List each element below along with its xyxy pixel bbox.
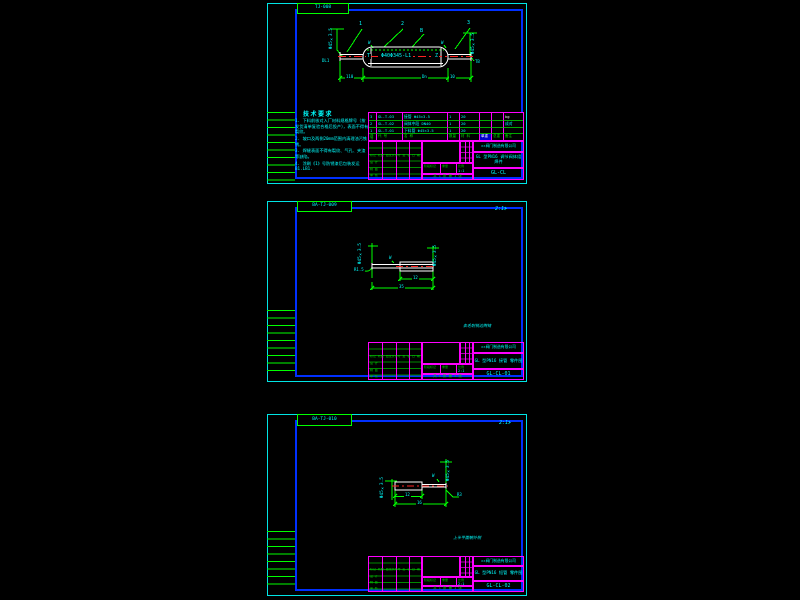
sheet3-revision-ladder — [267, 531, 295, 591]
radius-label: R3 — [457, 493, 462, 497]
weight-label: 重量 — [442, 579, 448, 582]
drawing-title: GL 型PN16 接管 零件图 — [475, 359, 523, 364]
drawing-number: GL-CL-02 — [486, 584, 510, 590]
dim-left: 110 — [345, 75, 354, 79]
grid-line — [465, 343, 466, 363]
weld-symbol-right: W — [441, 41, 443, 45]
drawing-title-cell: GL 型PN16 调节阀体组焊件 — [473, 152, 524, 168]
note-item-3: 3. 焊缝表面不得有裂纹、气孔、夹渣等缺陷。 — [295, 148, 369, 159]
weld-symbol: W — [432, 474, 434, 478]
grid-line — [469, 142, 470, 162]
grid-line — [440, 365, 441, 373]
bom-cell — [492, 113, 504, 120]
draft-label: 制 图 — [370, 369, 378, 372]
drawing-number: GL-CL — [491, 171, 506, 177]
bom-header-cell: 备注 — [504, 133, 523, 140]
corner-label-left: DL1 — [322, 59, 329, 63]
bom-cell: 成对 — [504, 120, 523, 127]
sheet3-drawing-number-tab: BA-TJ-010 — [297, 414, 352, 426]
company-cell: ××阀门制造有限公司 — [473, 141, 524, 152]
part-name: 短管 — [435, 563, 446, 571]
sheet2-tab-label: BA-TJ-009 — [312, 204, 336, 209]
right-pipe-note: Φ45×3.5 — [447, 460, 452, 481]
drawing-number-cell: GL-CL-01 — [473, 369, 524, 380]
sheet2-drawing-number-tab: BA-TJ-009 — [297, 201, 352, 212]
bom-cell: 3 — [369, 113, 377, 120]
sheet3-tab-label: BA-TJ-010 — [312, 418, 336, 423]
titleblock-mark-row: 标记 处数 更改文件号 签 名 日 期 — [370, 355, 420, 358]
scale-value: 2:1 — [458, 370, 464, 374]
bom-header-cell: 数量 — [448, 133, 460, 140]
grid-line — [456, 164, 457, 173]
sheet1-revision-ladder — [267, 112, 295, 186]
drawing-number-cell: GL-CL — [473, 168, 524, 180]
grid-line — [409, 343, 410, 379]
grid-line — [396, 557, 397, 591]
sheet2-revision-ladder — [267, 310, 295, 377]
titleblock-small-grid — [460, 342, 473, 364]
grid-line — [409, 557, 410, 591]
sheet1-drawing-number-tab: TJ-008 — [297, 3, 349, 14]
scale-grid: 阶段标记 重量 比例 2:1 — [422, 577, 473, 586]
scale-label: 比例 — [458, 165, 464, 168]
right-pipe-note: Φ45×3.5 — [434, 245, 439, 266]
note-item-2: 2. 坡口及两侧20mm范围内清理油污铁锈。 — [295, 136, 369, 147]
bom-cell — [480, 120, 492, 127]
view-scale-label: 2:1≯ — [495, 207, 507, 212]
part-label: Φ40Φ345-L1 — [380, 54, 412, 59]
dim-bottom: 35 — [398, 285, 405, 289]
bom-header-cell: 序号 — [369, 133, 377, 140]
stage-label: 阶段标记 — [424, 579, 436, 582]
weld-symbol-left: W — [368, 41, 370, 45]
left-pipe-note: Φ45×3.5 — [381, 477, 386, 498]
draft-label: 制 图 — [370, 168, 378, 171]
grid-line — [456, 365, 457, 373]
titleblock-small-grid — [460, 141, 473, 163]
end-label-left: T — [366, 54, 371, 59]
check-label: 审 核 — [370, 587, 378, 590]
grid-line — [382, 142, 383, 179]
company-name: ××阀门制造有限公司 — [481, 144, 516, 148]
radius-label: R1.5 — [354, 268, 364, 272]
grid-line — [469, 343, 470, 363]
dim-top: 12 — [412, 276, 419, 280]
sheet-info: 共 1 张 第 1 张 — [433, 587, 462, 591]
bom-cell: GL-T-02 — [377, 120, 403, 127]
bom-cell: 1 — [448, 113, 460, 120]
grid-line — [465, 557, 466, 576]
bom-header-cell: 代 号 — [377, 133, 403, 140]
titleblock-signature-grid: 标记 处数 更改文件号 签 名 日 期 设 计 制 图 审 核 — [368, 342, 422, 380]
dim-top: 12 — [404, 493, 411, 497]
cad-canvas: TJ-008 1 2 B 3 Φ45×3.5 Φ45×3.5 W W T Φ40… — [0, 0, 800, 600]
grid-line — [469, 557, 470, 576]
drawing-caption: 上半平面朝外侧 — [453, 536, 481, 540]
titleblock-signature-grid: 标记 处数 更改文件号 签 名 日 期 设 计 制 图 审 核 — [368, 141, 422, 180]
grid-line — [396, 343, 397, 379]
grid-line — [382, 557, 383, 591]
bom-cell: 1 — [448, 120, 460, 127]
draft-label: 制 图 — [370, 581, 378, 584]
grid-line — [382, 343, 383, 379]
design-label: 设 计 — [370, 362, 378, 365]
part-name-box: 调节阀 — [422, 141, 460, 163]
check-label: 审 核 — [370, 174, 378, 177]
sheet-count-row: 共 1 张 第 1 张 — [422, 374, 473, 380]
drawing-title: GL 型PN16 调节阀体组焊件 — [474, 155, 523, 164]
left-pipe-note: Φ45×3.5 — [359, 243, 364, 264]
bom-cell: 阀体中段 DN40 — [403, 120, 448, 127]
company-name: ××阀门制造有限公司 — [481, 345, 516, 349]
bom-header-cell: 材 料 — [460, 133, 480, 140]
stage-label: 阶段标记 — [424, 165, 436, 168]
grid-line — [409, 142, 410, 179]
corner-label-right: TB — [475, 60, 480, 64]
bom-header-cell-weight: 单重 — [480, 133, 492, 140]
titleblock-mark-row: 标记 处数 更改文件号 签 名 日 期 — [370, 568, 420, 571]
bom-cell: 2 — [369, 120, 377, 127]
scale-grid: 阶段标记 重量 比例 1:1 — [422, 163, 473, 174]
titleblock-small-grid — [460, 556, 473, 577]
bom-cell: kg — [504, 113, 523, 120]
company-name: ××阀门制造有限公司 — [481, 559, 516, 563]
weight-label: 重量 — [442, 165, 448, 168]
dim-bottom: 16 — [416, 501, 423, 505]
drawing-number-cell: GL-CL-02 — [473, 581, 524, 592]
grid-line — [456, 578, 457, 585]
scale-grid: 阶段标记 重量 比例 2:1 — [422, 364, 473, 374]
check-label: 审 核 — [370, 375, 378, 378]
drawing-caption: 去毛刺锐边倒钝 — [463, 324, 491, 328]
weight-label: 重量 — [442, 366, 448, 369]
part-name: 接管 — [435, 349, 446, 357]
grid-line — [440, 578, 441, 585]
bom-header-cell: 名 称 — [403, 133, 448, 140]
bom-cell: GL-T-03 — [377, 113, 403, 120]
grid-line — [440, 164, 441, 173]
bom-cell: 20 — [460, 113, 480, 120]
company-cell: ××阀门制造有限公司 — [473, 556, 524, 566]
weld-symbol: W — [389, 256, 391, 260]
dim-mid: Dn — [421, 75, 428, 79]
design-label: 设 计 — [370, 161, 378, 164]
drawing-title-cell: GL 型PN16 短管 零件图 — [473, 566, 524, 581]
note-item-4: 4. 涂刷《1》号防锈漆后包装发运 B1.LB1. — [295, 161, 369, 172]
technical-notes: 1. 下料前核对入厂材料规格牌号（按发货清单复验合格后投产），表面不得有裂纹。 … — [295, 118, 369, 173]
bom-cell — [492, 120, 504, 127]
balloon-2: 2 — [401, 22, 404, 27]
grid-line — [396, 142, 397, 179]
titleblock-signature-grid: 标记 处数 更改文件号 签 名 日 期 设 计 制 图 审 核 — [368, 556, 422, 592]
sheet-count-row: 共 1 张 第 1 张 — [422, 174, 473, 180]
bom-cell — [480, 113, 492, 120]
dim-right: 10 — [449, 75, 456, 79]
view-scale-label: 2:1≯ — [499, 421, 511, 426]
drawing-title-cell: GL 型PN16 接管 零件图 — [473, 353, 524, 369]
sheet-count-row: 共 1 张 第 1 张 — [422, 586, 473, 592]
balloon-3: 3 — [467, 21, 470, 26]
sheet-info: 共 1 张 第 1 张 — [433, 375, 462, 379]
bom-header-cell: 总重 — [492, 133, 504, 140]
bom-cell: 20 — [460, 120, 480, 127]
right-pipe-note: Φ45×3.5 — [472, 33, 477, 54]
part-name-box: 短管 — [422, 556, 460, 577]
notes-title: 技术要求 — [303, 109, 333, 118]
scale-value: 1:1 — [458, 170, 464, 174]
balloon-b: B — [420, 29, 423, 34]
grid-line — [465, 142, 466, 162]
titleblock-mark-row: 标记 处数 更改文件号 签 名 日 期 — [370, 154, 420, 157]
balloon-1: 1 — [359, 22, 362, 27]
note-item-1: 1. 下料前核对入厂材料规格牌号（按发货清单复验合格后投产），表面不得有裂纹。 — [295, 118, 369, 135]
part-name-box: 接管 — [422, 342, 460, 364]
end-label-right: Z — [434, 54, 439, 59]
drawing-title: GL 型PN16 短管 零件图 — [475, 571, 523, 576]
bom-table: 3 GL-T-03 接管 Φ45×3.5 1 20 kg 2 GL-T-02 阀… — [368, 112, 524, 141]
part-name: 调节阀 — [433, 148, 450, 156]
drawing-number: GL-CL-01 — [486, 372, 510, 378]
design-label: 设 计 — [370, 575, 378, 578]
sheet-info: 共 1 张 第 1 张 — [433, 175, 462, 179]
bom-cell: 接管 Φ45×3.5 — [403, 113, 448, 120]
left-pipe-note: Φ45×3.5 — [330, 28, 335, 49]
company-cell: ××阀门制造有限公司 — [473, 342, 524, 353]
stage-label: 阶段标记 — [424, 366, 436, 369]
sheet1-tab-label: TJ-008 — [315, 6, 331, 11]
